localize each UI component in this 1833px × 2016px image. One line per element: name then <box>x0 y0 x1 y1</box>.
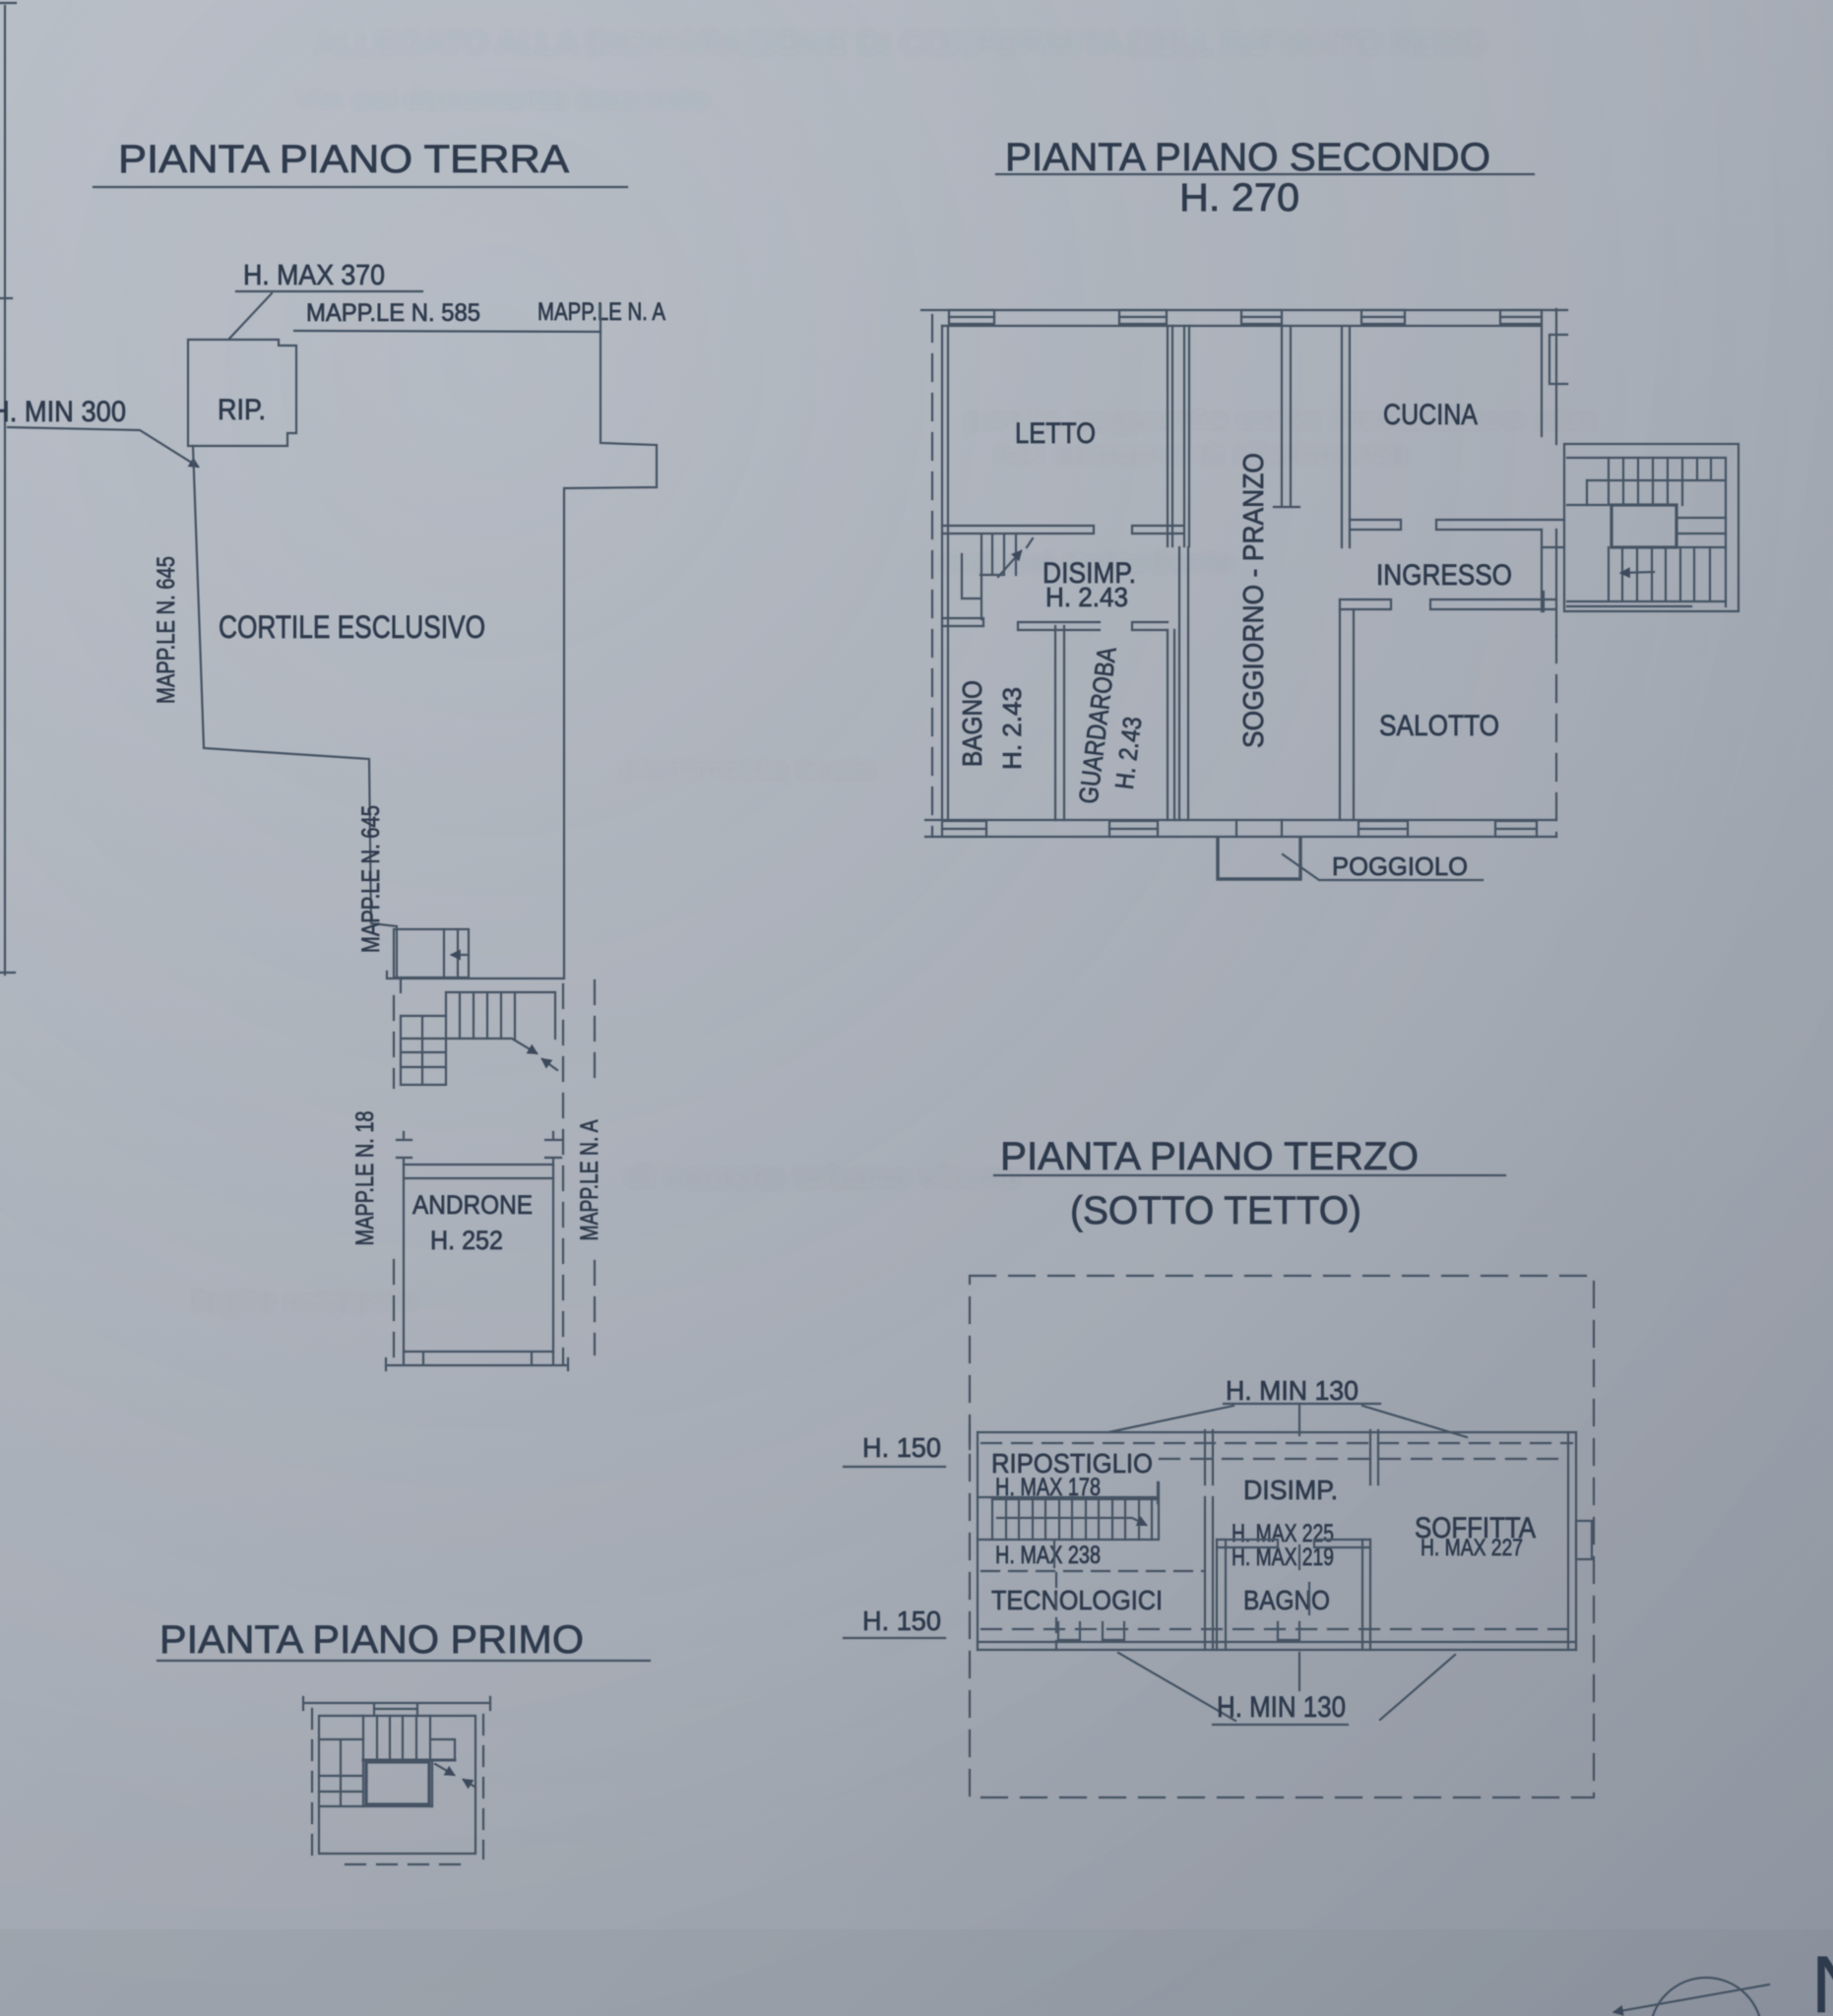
svg-text:H. 2.43: H. 2.43 <box>1045 582 1128 612</box>
svg-text:POGGIOLO: POGGIOLO <box>1332 851 1468 881</box>
svg-text:H. 270: H. 270 <box>1179 176 1299 220</box>
svg-text:PIANTA PIANO PRIMO: PIANTA PIANO PRIMO <box>159 1618 584 1662</box>
svg-text:MAPP.LE N. A: MAPP.LE N. A <box>576 1119 603 1240</box>
svg-text:MAPP.LE N. 645: MAPP.LE N. 645 <box>153 556 180 704</box>
svg-text:H. MAX 238: H. MAX 238 <box>995 1542 1101 1569</box>
svg-text:H. 2.43: H. 2.43 <box>997 687 1027 770</box>
svg-text:CUCINA: CUCINA <box>1383 399 1478 431</box>
svg-text:(SOTTO TETTO): (SOTTO TETTO) <box>1070 1189 1361 1232</box>
svg-text:PIANTA PIANO SECONDO: PIANTA PIANO SECONDO <box>1005 136 1490 179</box>
svg-text:PIANTA PIANO TERRA: PIANTA PIANO TERRA <box>118 138 569 181</box>
svg-text:TECNOLOGICI: TECNOLOGICI <box>991 1585 1163 1615</box>
svg-text:RIP.: RIP. <box>218 394 266 426</box>
svg-text:MAPP.LE N. 645: MAPP.LE N. 645 <box>357 805 385 953</box>
svg-text:BAGNO: BAGNO <box>957 680 987 767</box>
svg-text:H. 150: H. 150 <box>862 1432 941 1463</box>
svg-text:H. MAX 227: H. MAX 227 <box>1421 1535 1523 1561</box>
svg-text:H. 150: H. 150 <box>862 1606 941 1636</box>
svg-text:SALOTTO: SALOTTO <box>1379 710 1499 742</box>
svg-text:H. MAX 370: H. MAX 370 <box>243 260 385 291</box>
svg-text:MAPP.LE N. A: MAPP.LE N. A <box>537 298 665 326</box>
svg-text:LETTO: LETTO <box>1015 417 1096 450</box>
svg-text:H. MIN 130: H. MIN 130 <box>1226 1375 1359 1406</box>
svg-text:H. MIN 300: H. MIN 300 <box>0 396 126 428</box>
svg-text:N: N <box>1811 1940 1833 2016</box>
svg-text:SOGGIORNO - PRANZO: SOGGIORNO - PRANZO <box>1238 453 1270 748</box>
svg-text:MAPP.LE N. 18: MAPP.LE N. 18 <box>351 1111 379 1246</box>
svg-text:PIANTA PIANO TERZO: PIANTA PIANO TERZO <box>1000 1135 1419 1178</box>
svg-text:BAGNO: BAGNO <box>1243 1585 1330 1615</box>
svg-text:CORTILE ESCLUSIVO: CORTILE ESCLUSIVO <box>219 609 485 645</box>
svg-text:DISIMP.: DISIMP. <box>1243 1475 1338 1505</box>
svg-text:ANDRONE: ANDRONE <box>412 1190 533 1220</box>
svg-text:H. 252: H. 252 <box>430 1226 503 1255</box>
svg-text:MAPP.LE N. 585: MAPP.LE N. 585 <box>306 299 480 327</box>
svg-text:H. MIN 130: H. MIN 130 <box>1217 1691 1346 1724</box>
svg-text:INGRESSO: INGRESSO <box>1376 559 1512 592</box>
